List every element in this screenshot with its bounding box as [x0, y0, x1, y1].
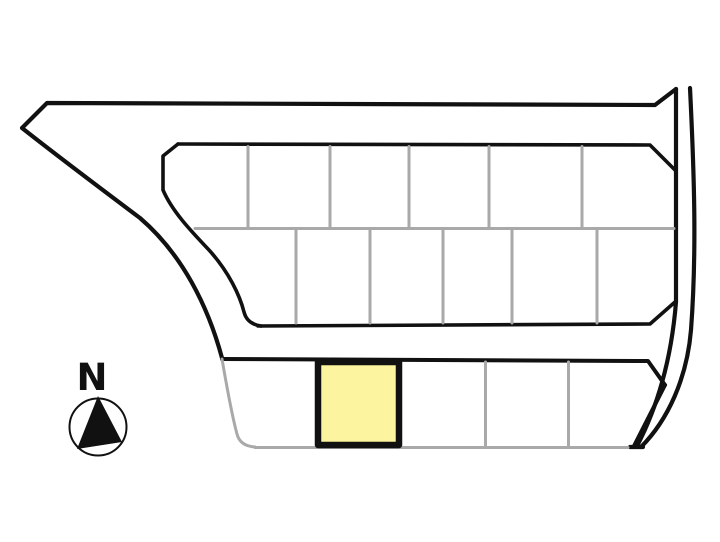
middle-block-group: [163, 144, 675, 326]
south-row-top-edge: [222, 359, 665, 385]
south-row-group: [222, 359, 665, 448]
south-row-left-edge: [222, 359, 255, 447]
middle-block-top-edge: [178, 144, 675, 170]
middle-block-bottom-edge: [258, 302, 675, 326]
outer-boundary-west: [22, 89, 676, 358]
middle-block-left-edge: [163, 144, 261, 326]
road-left-edge: [637, 89, 676, 446]
site-plan-drawing: N: [0, 0, 720, 542]
road-right-edge: [641, 88, 694, 447]
south-row-lot-lines: [222, 359, 628, 448]
compass-north-label: N: [77, 356, 108, 399]
middle-block-lot-lines: [195, 147, 674, 324]
site-plan-page: N: [0, 0, 720, 542]
highlighted-lot: [318, 362, 399, 445]
compass-group: N: [70, 356, 127, 456]
